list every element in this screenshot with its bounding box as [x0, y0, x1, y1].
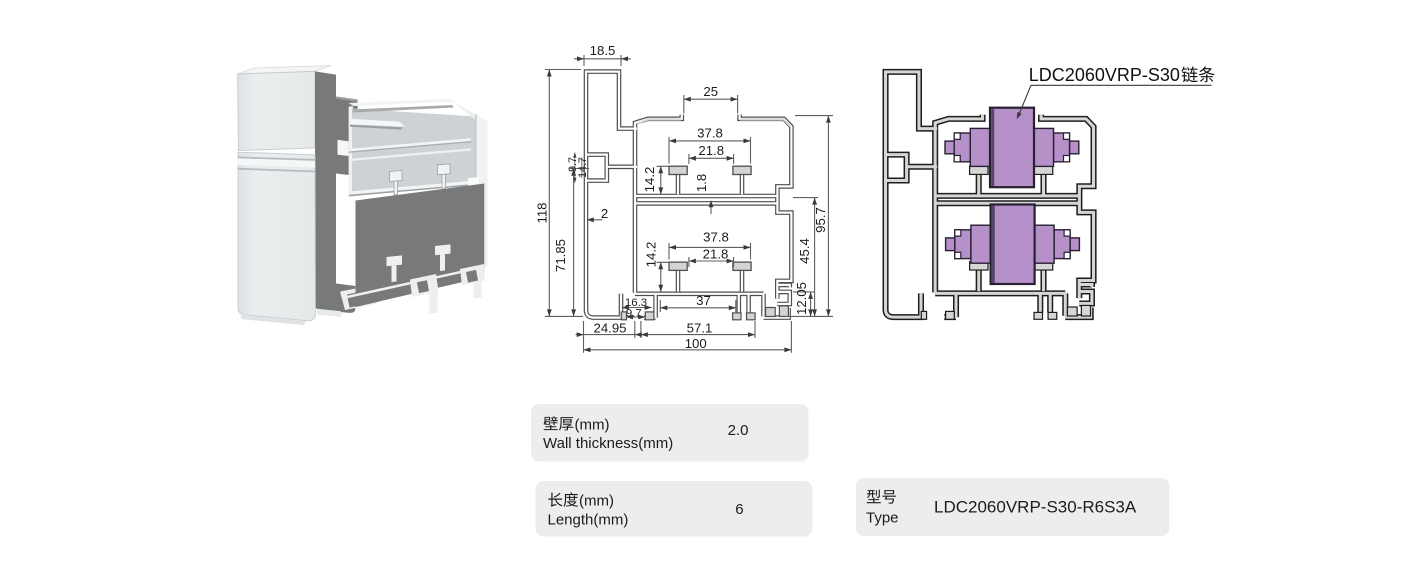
svg-text:95.7: 95.7 — [813, 207, 828, 233]
svg-text:100: 100 — [685, 336, 707, 351]
svg-text:(mm): (mm) — [575, 416, 610, 433]
svg-text:21.8: 21.8 — [698, 143, 724, 158]
svg-text:25: 25 — [703, 84, 718, 99]
svg-text:14.2: 14.2 — [643, 242, 658, 268]
svg-text:24.95: 24.95 — [593, 320, 626, 335]
svg-text:57.1: 57.1 — [687, 320, 713, 335]
svg-text:2.0: 2.0 — [728, 422, 749, 439]
svg-text:1.8: 1.8 — [694, 174, 709, 192]
svg-text:14.7: 14.7 — [577, 157, 589, 178]
svg-text:LDC2060VRP-S30: LDC2060VRP-S30 — [1029, 65, 1180, 85]
svg-text:LDC2060VRP-S30-R6S3A: LDC2060VRP-S30-R6S3A — [934, 498, 1137, 517]
svg-text:37.8: 37.8 — [697, 126, 723, 141]
svg-text:12.05: 12.05 — [794, 282, 809, 315]
svg-text:Length(mm): Length(mm) — [548, 511, 629, 528]
svg-text:18.5: 18.5 — [590, 43, 616, 58]
svg-text:6: 6 — [735, 501, 743, 518]
svg-text:Wall thickness(mm): Wall thickness(mm) — [543, 435, 673, 452]
svg-text:37.8: 37.8 — [703, 230, 729, 245]
svg-text:9.7: 9.7 — [626, 307, 642, 319]
svg-text:21.8: 21.8 — [703, 246, 729, 261]
svg-text:2: 2 — [601, 206, 608, 221]
svg-text:71.85: 71.85 — [553, 239, 568, 272]
svg-text:(mm): (mm) — [579, 493, 614, 510]
svg-text:37: 37 — [696, 293, 711, 308]
svg-text:45.4: 45.4 — [797, 238, 812, 264]
svg-text:14.2: 14.2 — [642, 167, 657, 193]
svg-text:Type: Type — [866, 510, 899, 527]
svg-text:118: 118 — [534, 202, 549, 223]
